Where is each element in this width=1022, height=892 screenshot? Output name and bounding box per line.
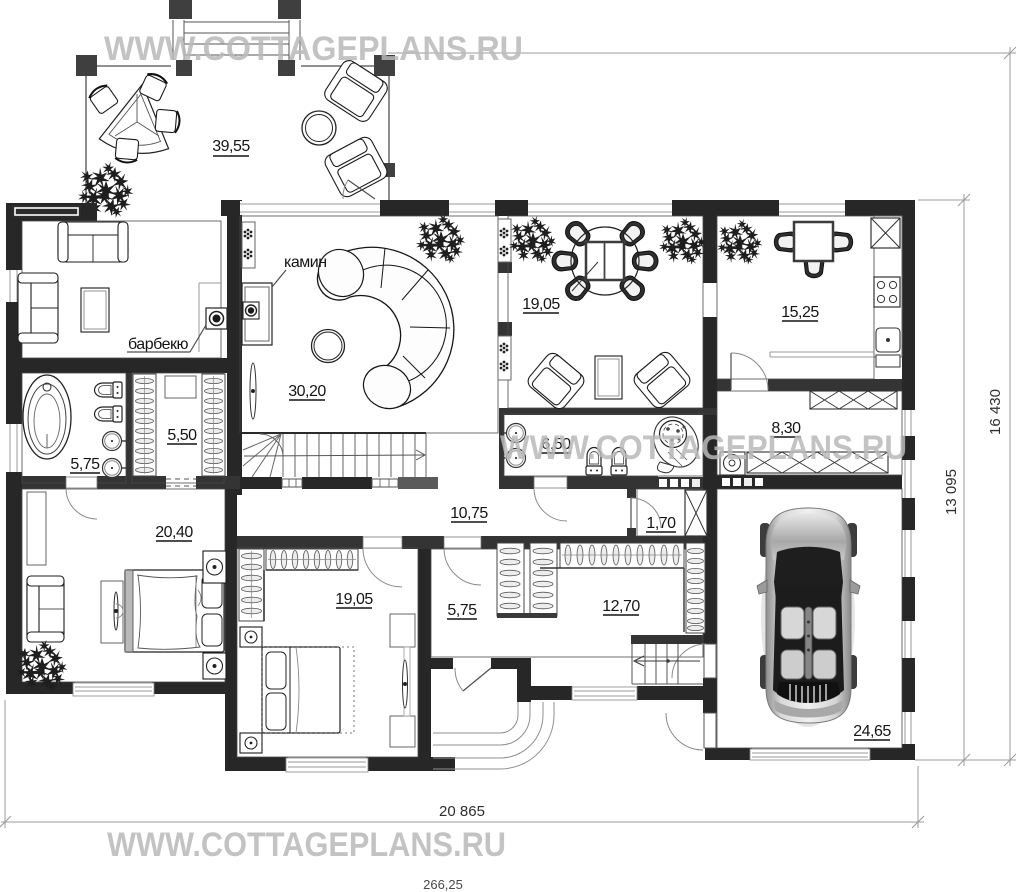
svg-text:19,05: 19,05: [522, 296, 560, 313]
svg-text:камин: камин: [284, 254, 327, 271]
svg-text:10,75: 10,75: [450, 505, 488, 522]
svg-text:5,50: 5,50: [167, 427, 197, 444]
svg-text:барбекю: барбекю: [128, 336, 188, 353]
svg-text:20,40: 20,40: [155, 524, 193, 541]
svg-text:15,25: 15,25: [781, 304, 819, 321]
svg-text:WWW.COTTAGEPLANS.RU: WWW.COTTAGEPLANS.RU: [500, 429, 907, 467]
svg-text:30,20: 30,20: [288, 383, 326, 400]
svg-text:19,05: 19,05: [335, 591, 373, 608]
svg-text:WWW.COTTAGEPLANS.RU: WWW.COTTAGEPLANS.RU: [107, 826, 506, 864]
svg-text:16 430: 16 430: [987, 389, 1004, 435]
svg-text:266,25: 266,25: [423, 877, 463, 892]
svg-text:5,75: 5,75: [70, 456, 100, 473]
svg-text:WWW.COTTAGEPLANS.RU: WWW.COTTAGEPLANS.RU: [104, 30, 523, 68]
svg-text:24,65: 24,65: [853, 723, 891, 740]
svg-text:39,55: 39,55: [212, 138, 250, 155]
svg-text:1,70: 1,70: [646, 515, 676, 532]
svg-text:5,75: 5,75: [447, 602, 477, 619]
svg-text:20 865: 20 865: [439, 803, 485, 820]
svg-text:12,70: 12,70: [602, 598, 640, 615]
svg-text:13 095: 13 095: [943, 469, 960, 515]
